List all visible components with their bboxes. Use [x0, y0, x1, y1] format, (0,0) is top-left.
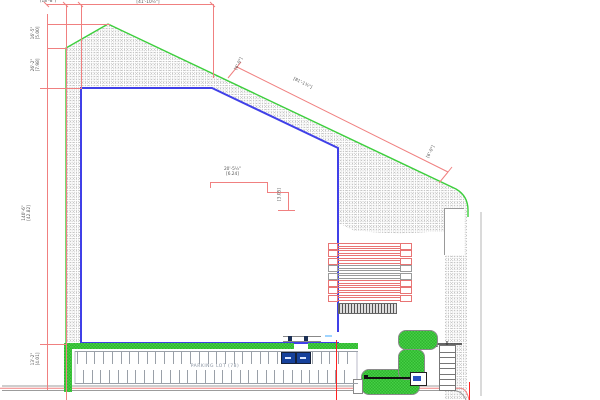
dock-stripe	[338, 250, 400, 251]
dock-bumper	[400, 243, 412, 250]
stair-rung	[440, 379, 455, 380]
stair-rung	[440, 357, 455, 358]
dock-stripe	[338, 300, 400, 301]
parking-stall-tick	[347, 351, 348, 364]
entry-door	[304, 336, 308, 341]
dock-stripe	[338, 243, 400, 244]
stair-rung	[440, 385, 455, 386]
parking-stall-tick	[179, 370, 180, 383]
parking-row-line-bottom	[75, 383, 358, 384]
dim-label-left-1: 16'-5" [5.00]	[32, 20, 42, 46]
dock-stripe	[338, 278, 400, 279]
dumpster-pad	[410, 372, 427, 386]
dock-stripe	[338, 265, 400, 266]
dim-label-diag-end-left: [6'-0"]	[232, 53, 247, 77]
dock-row-red	[328, 295, 412, 301]
parking-stall-tick	[214, 370, 215, 383]
dock-bumper	[328, 258, 338, 265]
dock-stripe	[338, 283, 400, 284]
dim-label-center-rot: [3.05]	[279, 183, 284, 205]
parking-stall-tick	[266, 370, 267, 383]
parking-stall-tick	[225, 351, 226, 364]
dock-stripe	[338, 270, 400, 271]
stair-rung	[440, 374, 455, 375]
site-line-x469	[469, 382, 470, 400]
parking-stall-tick	[240, 370, 241, 383]
dock-bumper	[400, 280, 412, 287]
parking-stall-tick	[144, 370, 145, 383]
dock-row-red	[328, 243, 412, 249]
site-line-x336	[336, 340, 337, 400]
ext-line-x213	[213, 4, 214, 78]
dock-bumper	[400, 295, 412, 302]
dock-bumper	[328, 250, 338, 257]
stair-rung	[440, 368, 455, 369]
dock-bumper	[328, 265, 338, 272]
dim-label-left-4: 13'-2" [4.01]	[32, 346, 42, 372]
parking-stall-tick	[121, 351, 122, 364]
parking-stall-tick	[199, 351, 200, 364]
parking-stall-tick	[109, 370, 110, 383]
parking-stall-tick	[321, 351, 322, 364]
dock-stripe	[338, 280, 400, 281]
dock-row-gray	[328, 265, 412, 271]
dock-stripe	[338, 287, 400, 288]
entry-door	[288, 336, 292, 341]
dock-stripe	[338, 263, 400, 264]
parking-stall-tick	[94, 351, 95, 364]
dim-label-center: 20'-5½" [6.24]	[205, 168, 260, 178]
parking-stall-tick	[327, 370, 328, 383]
dock-bumper	[400, 250, 412, 257]
parking-stall-tick	[234, 351, 235, 364]
parking-stall-tick	[164, 351, 165, 364]
parking-stall-tick	[260, 351, 261, 364]
dim-label-diag-end-right: [6'-0"]	[424, 141, 439, 165]
dock-bumper	[400, 287, 412, 294]
interior-dim-v2	[288, 192, 289, 211]
parking-stall-tick	[112, 351, 113, 364]
dim-tick-y88	[40, 88, 81, 89]
parking-stall-tick	[292, 370, 293, 383]
parking-stall-tick	[135, 370, 136, 383]
curb-steps	[353, 379, 363, 394]
parking-stall-tick	[242, 351, 243, 364]
parking-stall-tick	[205, 370, 206, 383]
dim-label-top-right: [41'-10½"]	[122, 1, 174, 6]
grass-strip-top-a	[72, 343, 294, 349]
dock-stripe	[338, 258, 400, 259]
dock-stripe	[338, 246, 400, 247]
dim-label-top-left: (18'-8")	[28, 0, 68, 5]
site-plan-canvas: PARKING LOT (78) (18'-8") [41'-10½"] 16'…	[0, 0, 600, 400]
ext-line-x81	[81, 4, 82, 89]
dim-tick-y48	[47, 48, 67, 49]
dim-label-left-2: 26'-2" [7.98]	[32, 52, 42, 78]
dock-row-red	[328, 280, 412, 286]
parking-stall-tick	[231, 370, 232, 383]
dim-tick-y24	[47, 24, 110, 25]
parking-stall-tick	[344, 370, 345, 383]
parking-stall-tick	[329, 351, 330, 364]
parking-stall-tick	[274, 370, 275, 383]
dock-row-gray	[328, 273, 412, 279]
parking-stall-tick	[277, 351, 278, 364]
interior-dim-drop	[210, 182, 211, 188]
parking-stall-tick	[301, 370, 302, 383]
ext-line-x66	[66, 4, 67, 400]
landscape-island-upper	[398, 330, 438, 350]
landscape-hatch-area	[0, 0, 600, 400]
entry-canopy-line	[283, 341, 321, 342]
parking-stall-tick	[268, 351, 269, 364]
parking-stall-tick	[318, 370, 319, 383]
parking-stall-tick	[312, 351, 313, 364]
stair-structure	[439, 345, 456, 391]
dock-bumper	[400, 273, 412, 280]
parking-stall-tick	[147, 351, 148, 364]
parking-stall-tick	[129, 351, 130, 364]
stair-rung	[440, 363, 455, 364]
parking-stall-tick	[83, 370, 84, 383]
parking-stall-tick	[138, 351, 139, 364]
parking-stall-tick	[248, 370, 249, 383]
parking-stall-tick	[173, 351, 174, 364]
dock-stripe	[338, 255, 400, 256]
parking-lot-label: PARKING LOT (78)	[165, 364, 265, 369]
dock-bumper	[328, 295, 338, 302]
dock-bumper	[328, 280, 338, 287]
dock-stripe	[338, 297, 400, 298]
stair-rung	[440, 352, 455, 353]
parking-stall-tick	[187, 370, 188, 383]
parking-stall-tick	[190, 351, 191, 364]
parking-stall-tick	[77, 351, 78, 364]
accessible-stall-marker	[281, 352, 296, 364]
parking-stall-tick	[257, 370, 258, 383]
dock-stripe	[338, 292, 400, 293]
dock-bumper	[328, 273, 338, 280]
parking-stall-tick	[161, 370, 162, 383]
parking-stall-tick	[170, 370, 171, 383]
parking-stall-tick	[118, 370, 119, 383]
dock-stripe	[338, 275, 400, 276]
dock-row-red	[328, 258, 412, 264]
dim-label-left-3: 140'-6" [42.82]	[23, 198, 33, 228]
parking-stall-tick	[92, 370, 93, 383]
parking-stall-tick	[181, 351, 182, 364]
parking-stall-tick	[309, 370, 310, 383]
dim-tick-y344	[40, 344, 66, 345]
dock-stripe	[338, 248, 400, 249]
dock-ramp-hatched	[338, 303, 397, 314]
parking-stall-tick	[283, 370, 284, 383]
dock-stripe	[338, 290, 400, 291]
dim-label-diagonal: [81'-1¾"]	[274, 69, 330, 100]
dock-stripe	[338, 268, 400, 269]
dock-bumper	[328, 243, 338, 250]
dock-bumper	[328, 287, 338, 294]
parking-stall-tick	[100, 370, 101, 383]
dock-stripe	[338, 285, 400, 286]
parking-stall-tick	[86, 351, 87, 364]
dock-stripe	[338, 273, 400, 274]
interior-dim-h3	[278, 210, 295, 211]
parking-stall-tick	[127, 370, 128, 383]
parking-stall-tick	[208, 351, 209, 364]
ext-line-x47	[47, 14, 48, 390]
interior-dim-h1	[210, 182, 267, 183]
parking-stall-tick	[103, 351, 104, 364]
dock-row-red	[328, 250, 412, 256]
dock-bumper	[400, 265, 412, 272]
dock-stripe	[338, 253, 400, 254]
parking-stall-tick	[251, 351, 252, 364]
parking-stall-tick	[222, 370, 223, 383]
parking-stall-tick	[153, 370, 154, 383]
accessible-stall-marker	[296, 352, 311, 364]
parking-stall-tick	[216, 351, 217, 364]
hatch-notch-cutout	[444, 208, 464, 255]
parking-stall-tick	[196, 370, 197, 383]
dock-stripe	[338, 295, 400, 296]
parking-stall-tick	[155, 351, 156, 364]
island-fence-line	[366, 377, 412, 379]
dock-bumper	[400, 258, 412, 265]
grass-strip-top-b	[308, 343, 358, 349]
dock-stripe	[338, 260, 400, 261]
parking-stall-tick	[338, 351, 339, 364]
dock-row-red	[328, 287, 412, 293]
vestibule-outline	[322, 332, 343, 342]
